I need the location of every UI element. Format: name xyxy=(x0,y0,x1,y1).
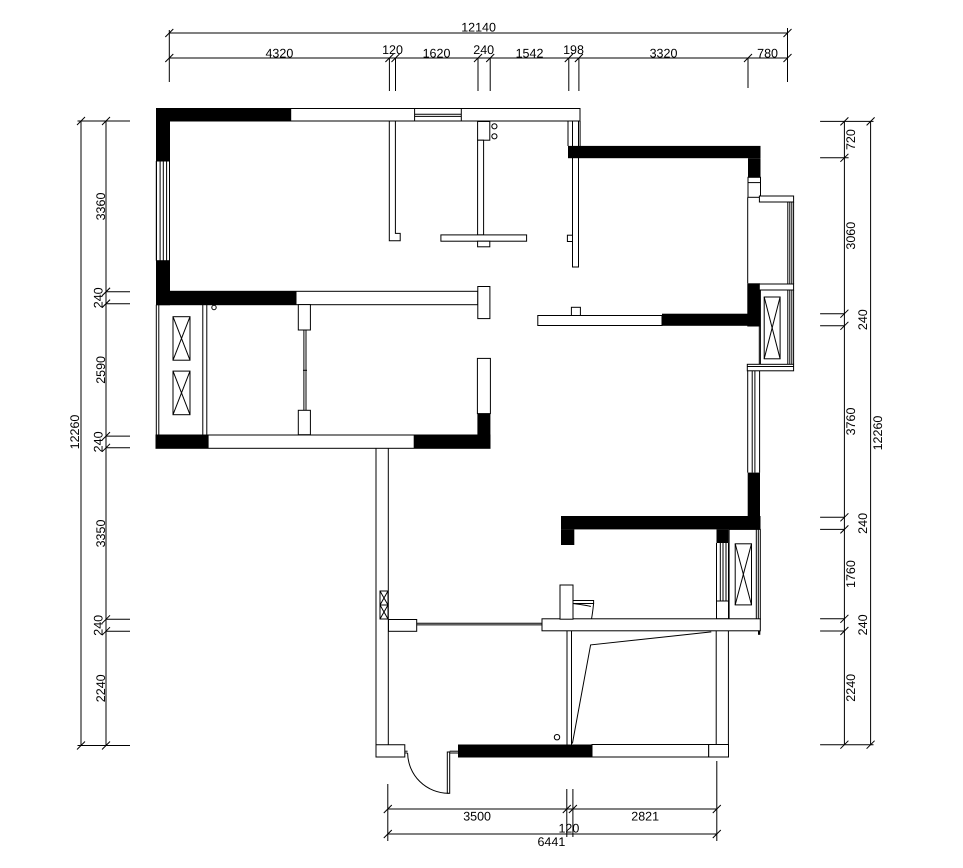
svg-text:720: 720 xyxy=(844,129,858,150)
svg-text:2240: 2240 xyxy=(94,674,108,702)
svg-text:3320: 3320 xyxy=(650,47,678,61)
svg-text:780: 780 xyxy=(757,47,778,61)
svg-text:240: 240 xyxy=(92,615,106,636)
svg-text:1760: 1760 xyxy=(844,560,858,588)
svg-text:6441: 6441 xyxy=(537,835,565,849)
svg-text:240: 240 xyxy=(92,287,106,308)
svg-text:12260: 12260 xyxy=(871,416,885,451)
svg-text:198: 198 xyxy=(563,43,584,57)
svg-text:2821: 2821 xyxy=(631,809,659,823)
svg-text:3350: 3350 xyxy=(94,520,108,548)
svg-text:2240: 2240 xyxy=(844,674,858,702)
svg-text:120: 120 xyxy=(558,821,579,835)
svg-text:3500: 3500 xyxy=(463,809,491,823)
svg-text:1620: 1620 xyxy=(423,47,451,61)
svg-text:4320: 4320 xyxy=(265,47,293,61)
svg-text:3760: 3760 xyxy=(844,408,858,436)
svg-text:3060: 3060 xyxy=(844,222,858,250)
svg-text:12260: 12260 xyxy=(68,415,82,450)
svg-text:240: 240 xyxy=(856,513,870,534)
svg-text:240: 240 xyxy=(92,431,106,452)
svg-text:240: 240 xyxy=(473,43,494,57)
svg-text:1542: 1542 xyxy=(516,47,544,61)
svg-text:12140: 12140 xyxy=(461,20,496,34)
svg-text:240: 240 xyxy=(856,309,870,330)
svg-text:2590: 2590 xyxy=(94,356,108,384)
svg-text:120: 120 xyxy=(382,43,403,57)
svg-text:3360: 3360 xyxy=(94,193,108,221)
svg-text:240: 240 xyxy=(856,614,870,635)
